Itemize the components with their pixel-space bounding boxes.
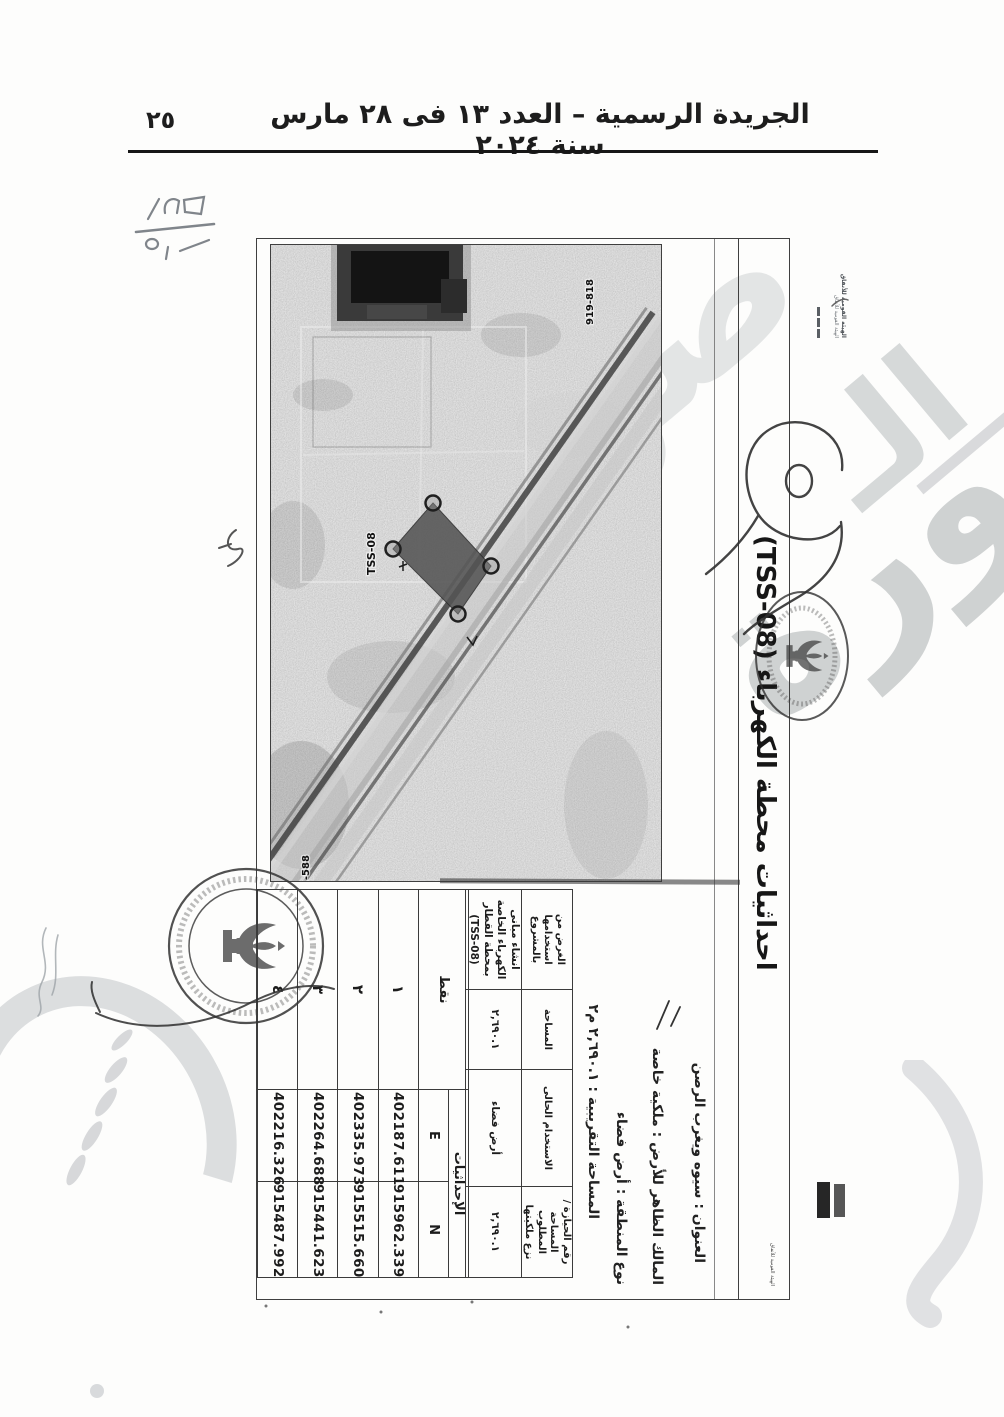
info-approx-area: المساحة التقريبية : ٢,٦٩٠.١ م٢ [585,1004,601,1219]
watermark-swirl [896,1060,1004,1330]
summary-header-row: رقم الحيازة / المساحة المطلوب نزع ملكيته… [522,890,573,1278]
authority-logo-top: الهيئة القومية للأنفاق الهيئة القومية لل… [795,258,847,338]
official-stamp-large [158,860,334,1036]
summary-value-row: ٢,٦٩٠.١ أرض فضاء ٢,٦٩٠.١ انشاء مبانى الك… [466,890,522,1278]
info-owner: المالك الظاهر للأرض : ملكية خاصة [649,1048,665,1285]
point-no: ٢ [338,890,378,1090]
eagle-emblem-icon [786,640,828,671]
summary-header-purpose: الغرض من استخدامها بالمشروع [522,890,573,990]
handwritten-margin-mark [219,530,243,566]
coords-group-header: الإحداثيات [448,1090,468,1278]
logo-bar-gray [834,1184,845,1217]
info-address: العنوان : سيوه ويغرب الرصن [691,1063,707,1263]
summary-value-purpose: انشاء مبانى الكهرباء الخاصة بمحطة القطار… [466,890,522,990]
coords-points-header: نقط [418,890,468,1090]
authority-logo-mark-icon [813,258,832,338]
official-stamp-small [746,582,858,732]
coords-n-header: N [418,1182,448,1278]
gazette-page: الجريدة الرسمية – العدد ١٣ فى ٢٨ مارس سن… [0,0,1004,1417]
watermark-dot [90,1384,104,1398]
point-e: 402187.611 [378,1090,418,1182]
info-zone-type: نوع المنطقة : أرض فضاء [613,1112,629,1285]
logo-bar-dark [817,1182,830,1218]
summary-header-tenure: رقم الحيازة / المساحة المطلوب نزع ملكيته… [522,1187,573,1278]
authority-logo-subtext: الهيئة القومية للأنفاق [832,258,839,338]
summary-header-area: المساحة [522,990,573,1070]
site-label: TSS-08 [365,532,378,575]
watermark-wreath [52,1010,182,1200]
authority-logo-text: الهيئة القومية للأنفاق [839,258,847,338]
summary-header-current-use: الاستخدام الحالى [522,1070,573,1187]
watermark-fragment: الـ [788,327,992,530]
point-e: 402335.973 [338,1090,378,1182]
summary-value-area: ٢,٦٩٠.١ [466,990,522,1070]
coords-row-2: ٢ 402335.973 915515.660 [338,890,378,1278]
page-number: ٢٥ [146,106,175,134]
point-n: 915515.660 [338,1182,378,1278]
coords-header-row: نقط الإحداثيات [448,890,468,1278]
point-e: 402264.688 [298,1090,338,1182]
header-rule [128,150,878,153]
point-n: 915441.623 [298,1182,338,1278]
scan-specks [265,1301,630,1329]
title-band-rule-2 [714,239,715,1299]
building-block [331,245,471,331]
coords-row-1: ١ 402187.611 915962.339 [378,890,418,1278]
summary-table: رقم الحيازة / المساحة المطلوب نزع ملكيته… [465,889,573,1278]
coords-e-header: E [418,1090,448,1182]
point-n: 915487.992 [258,1182,298,1278]
satellite-image: TSS-08 419-588 919-818 [270,244,662,882]
parcel-label-top: 919-818 [585,279,596,325]
summary-value-current-use: أرض فضاء [466,1070,522,1187]
watermark-seal-arc-bottom [0,1275,165,1417]
handwritten-docket-number [136,197,214,259]
title-band-rule [738,239,739,1299]
satellite-image-canvas: TSS-08 419-588 919-818 [271,245,661,881]
summary-value-tenure: ٢,٦٩٠.١ [466,1187,522,1278]
point-no: ١ [378,890,418,1090]
point-e: 402216.326 [258,1090,298,1182]
authority-logo-text: الهيئة القومية للأنفاق [769,1208,775,1286]
authority-logo-bottom: الهيئة القومية للأنفاق [797,1172,849,1250]
point-n: 915962.339 [378,1182,418,1278]
eagle-emblem-icon [223,923,285,969]
watermark-stroke [916,377,1004,495]
